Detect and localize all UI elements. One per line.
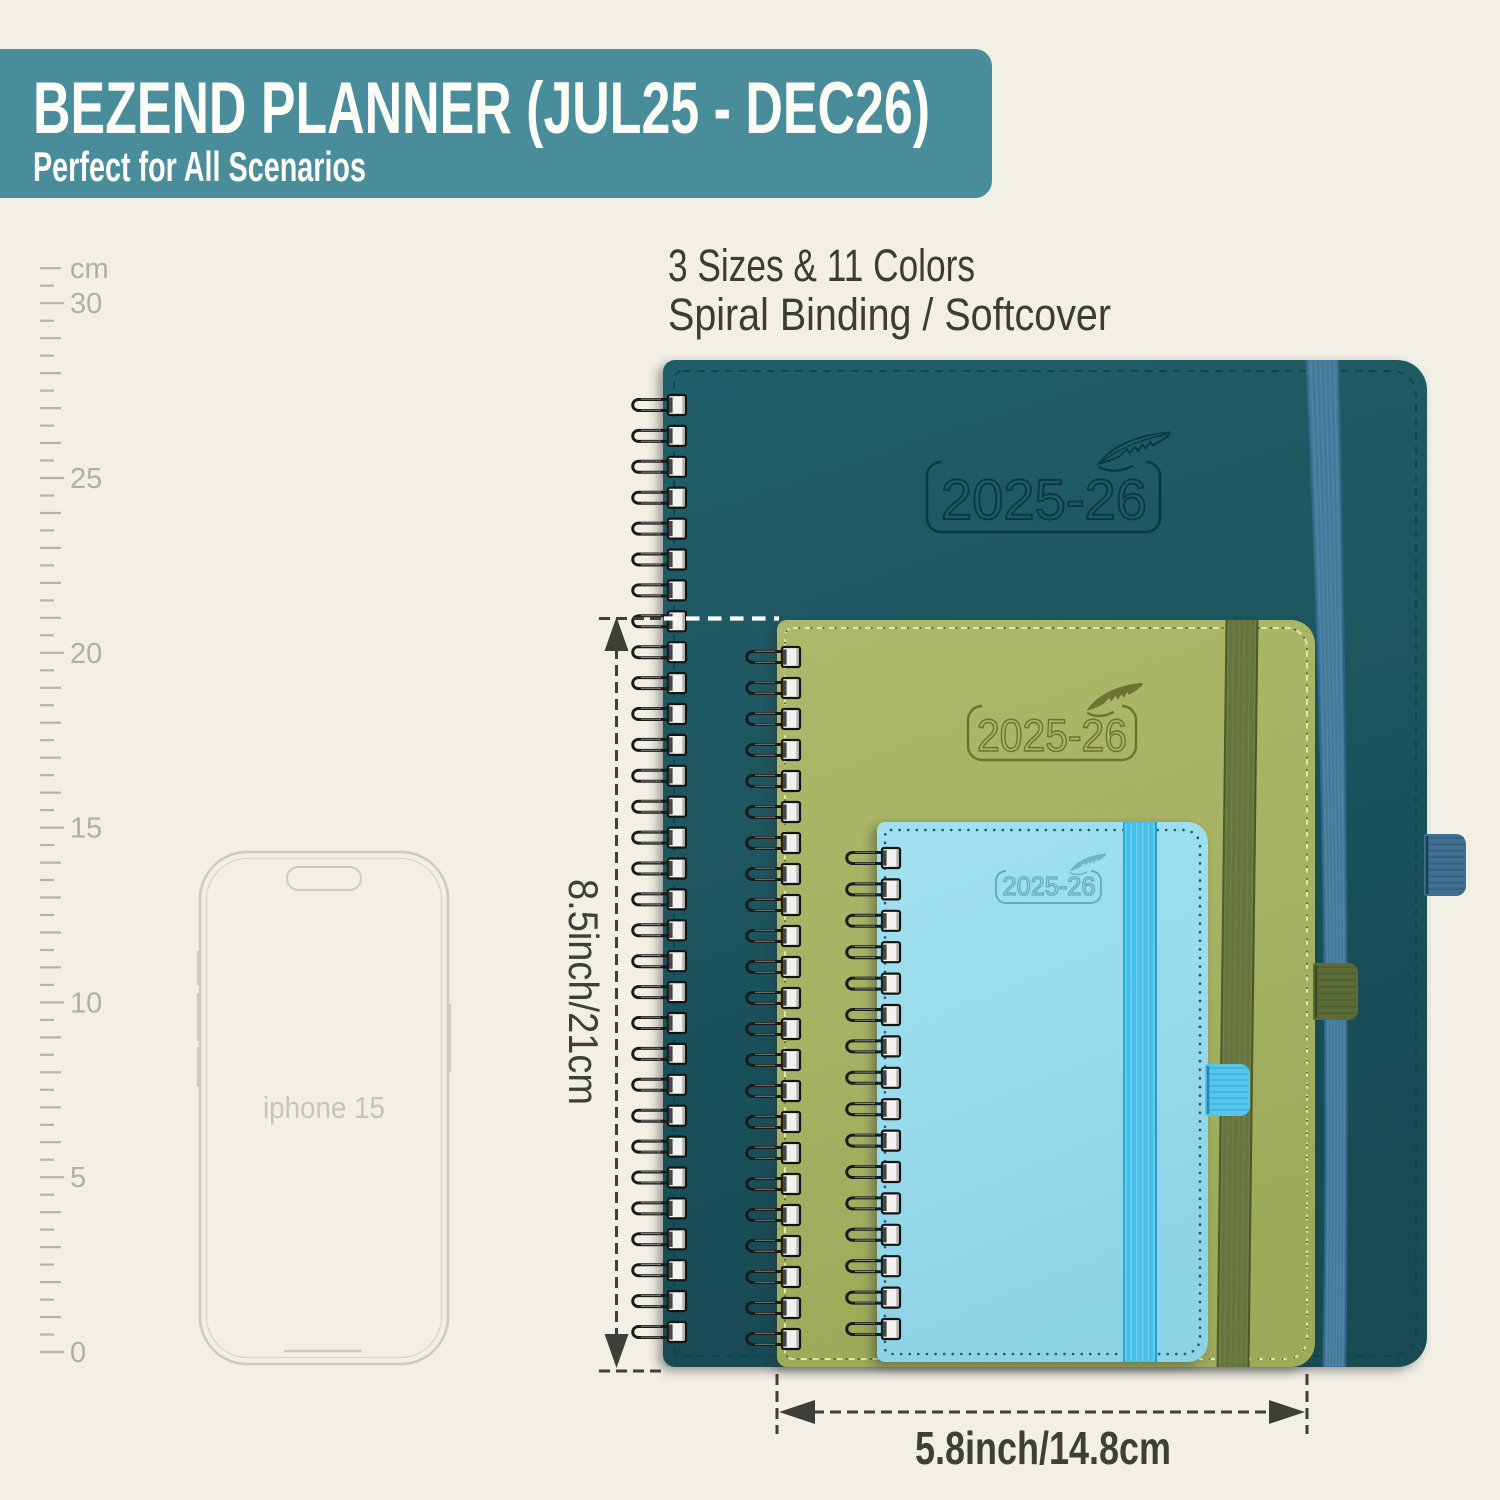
svg-text:cm: cm [70, 253, 109, 285]
svg-text:BEZEND PLANNER (JUL25 - DEC26): BEZEND PLANNER (JUL25 - DEC26) [33, 68, 930, 149]
svg-text:iphone 15: iphone 15 [263, 1090, 385, 1125]
svg-text:20: 20 [70, 638, 102, 670]
svg-text:Spiral Binding / Softcover: Spiral Binding / Softcover [668, 289, 1111, 340]
svg-text:0: 0 [70, 1337, 86, 1369]
svg-text:25: 25 [70, 463, 102, 495]
svg-text:10: 10 [70, 987, 102, 1019]
svg-text:3 Sizes & 11 Colors: 3 Sizes & 11 Colors [668, 240, 975, 291]
svg-text:8.5inch/21cm: 8.5inch/21cm [560, 879, 607, 1105]
svg-text:Perfect for All Scenarios: Perfect for All Scenarios [33, 143, 366, 190]
svg-text:15: 15 [70, 813, 102, 845]
svg-text:5: 5 [70, 1162, 86, 1194]
svg-text:5.8inch/14.8cm: 5.8inch/14.8cm [915, 1422, 1171, 1474]
svg-text:2025-26: 2025-26 [941, 468, 1147, 532]
svg-text:2025-26: 2025-26 [1003, 871, 1096, 901]
svg-text:2025-26: 2025-26 [977, 710, 1127, 761]
svg-text:30: 30 [70, 288, 102, 320]
